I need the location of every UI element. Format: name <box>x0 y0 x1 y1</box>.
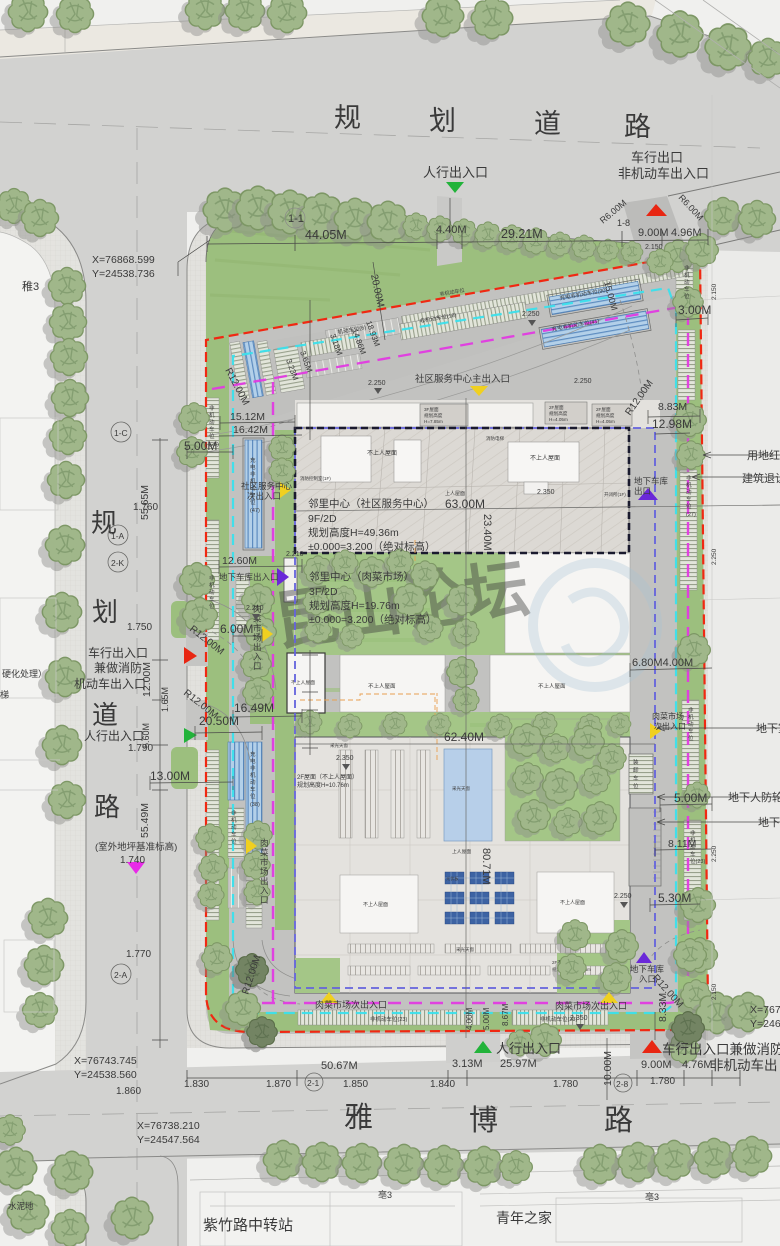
svg-text:13.00M: 13.00M <box>150 769 190 783</box>
svg-text:采光天窗: 采光天窗 <box>456 946 474 953</box>
svg-text:1.770: 1.770 <box>126 949 151 960</box>
svg-text:兼做消防: 兼做消防 <box>94 660 142 675</box>
svg-text:X=76738.210: X=76738.210 <box>137 1120 200 1132</box>
svg-text:2.150: 2.150 <box>711 283 718 300</box>
svg-text:4.00M: 4.00M <box>465 1007 474 1030</box>
svg-text:不上人屋面: 不上人屋面 <box>363 901 388 908</box>
svg-text:16.49M: 16.49M <box>234 701 274 715</box>
svg-text:12.60M: 12.60M <box>222 555 257 567</box>
svg-text:路: 路 <box>94 792 120 822</box>
svg-text:地下室: 地下室 <box>756 721 780 735</box>
svg-text:非机动车出: 非机动车出 <box>710 1057 778 1073</box>
svg-text:机动车出入口: 机动车出入口 <box>74 676 146 691</box>
svg-text:光伏板: 光伏板 <box>446 875 459 882</box>
svg-text:博: 博 <box>469 1104 498 1137</box>
svg-text:50.67M: 50.67M <box>321 1060 358 1072</box>
svg-text:5.60M: 5.60M <box>141 723 151 748</box>
svg-text:2-1: 2-1 <box>307 1078 320 1088</box>
svg-text:1.750: 1.750 <box>127 622 152 633</box>
svg-text:44.05M: 44.05M <box>305 228 347 242</box>
svg-text:消防电梯: 消防电梯 <box>486 435 504 442</box>
svg-text:次出入口: 次出入口 <box>654 721 686 731</box>
svg-text:Y=24538.736: Y=24538.736 <box>92 268 155 280</box>
svg-text:6.00M: 6.00M <box>220 622 253 636</box>
svg-text:±0.000=3.200（绝对标高）: ±0.000=3.200（绝对标高） <box>308 540 435 553</box>
svg-text:规划高度H=49.36m: 规划高度H=49.36m <box>308 526 399 539</box>
svg-text:X=76868.599: X=76868.599 <box>92 254 155 266</box>
svg-text:雅: 雅 <box>344 1101 373 1134</box>
svg-text:55.49M: 55.49M <box>139 803 151 838</box>
svg-text:规: 规 <box>334 103 361 133</box>
svg-text:62.40M: 62.40M <box>444 730 484 744</box>
svg-text:3.13M: 3.13M <box>452 1058 483 1070</box>
svg-text:亳3: 亳3 <box>645 1191 659 1202</box>
svg-text:不上人屋面: 不上人屋面 <box>367 449 397 457</box>
svg-text:路: 路 <box>624 112 651 142</box>
svg-text:地下车库出入口: 地下车库出入口 <box>219 572 279 582</box>
svg-text:2-8: 2-8 <box>616 1079 629 1089</box>
svg-text:±0.000=3.200（绝对标高）: ±0.000=3.200（绝对标高） <box>309 613 436 626</box>
svg-text:地下车库: 地下车库 <box>634 476 669 486</box>
svg-text:H=7.85m: H=7.85m <box>424 419 443 424</box>
svg-text:非机动车位(23): 非机动车位(23) <box>370 1015 407 1023</box>
svg-text:Y=246: Y=246 <box>750 1018 780 1030</box>
svg-text:8.33M: 8.33M <box>657 993 669 1022</box>
svg-text:地下车库: 地下车库 <box>630 964 665 974</box>
svg-text:水泥地: 水泥地 <box>8 1201 34 1211</box>
svg-text:非机动车位(23): 非机动车位(23) <box>540 1015 577 1023</box>
svg-text:不上人屋面: 不上人屋面 <box>368 682 396 690</box>
svg-text:1.65M: 1.65M <box>160 687 170 712</box>
svg-text:稚3: 稚3 <box>22 280 39 293</box>
svg-text:5.00M: 5.00M <box>674 791 707 805</box>
svg-text:2.350: 2.350 <box>537 489 555 496</box>
svg-text:(室外地坪基准标高): (室外地坪基准标高) <box>95 841 177 853</box>
svg-text:不上人屋面: 不上人屋面 <box>538 682 566 690</box>
svg-text:路: 路 <box>604 1104 633 1137</box>
svg-text:青年之家: 青年之家 <box>496 1210 552 1226</box>
svg-text:非机动车位: 非机动车位 <box>688 706 694 742</box>
svg-text:23.40M: 23.40M <box>481 514 493 551</box>
svg-text:Y=24538.560: Y=24538.560 <box>74 1069 137 1081</box>
svg-text:2-K: 2-K <box>111 558 125 568</box>
svg-text:2.150: 2.150 <box>711 983 718 1000</box>
svg-text:车行出入口: 车行出入口 <box>88 645 148 660</box>
svg-text:2.250: 2.250 <box>711 845 718 862</box>
svg-text:2.150: 2.150 <box>645 244 663 251</box>
svg-text:20.50M: 20.50M <box>199 714 239 728</box>
svg-text:非机动车出入口: 非机动车出入口 <box>618 166 709 181</box>
svg-text:建筑退让: 建筑退让 <box>742 471 780 485</box>
svg-text:9.00M: 9.00M <box>641 1059 672 1071</box>
svg-text:1-C: 1-C <box>114 428 128 438</box>
svg-text:1.780: 1.780 <box>650 1076 675 1087</box>
svg-text:肉菜市场次出入口: 肉菜市场次出入口 <box>555 1000 627 1011</box>
svg-text:地下人防轮: 地下人防轮 <box>728 790 780 804</box>
svg-text:地下: 地下 <box>758 816 780 829</box>
svg-text:8.83M: 8.83M <box>658 401 687 413</box>
svg-text:63.00M: 63.00M <box>445 497 485 511</box>
svg-text:X=767: X=767 <box>750 1004 780 1016</box>
svg-text:6.80M4.00M: 6.80M4.00M <box>632 657 693 669</box>
svg-text:开闭所(1F): 开闭所(1F) <box>604 491 626 498</box>
svg-text:人行出入口: 人行出入口 <box>84 729 144 743</box>
svg-text:1.860: 1.860 <box>116 1086 141 1097</box>
svg-text:紫竹路中转站: 紫竹路中转站 <box>203 1217 293 1234</box>
svg-text:道: 道 <box>534 109 561 139</box>
svg-text:规划高度H=19.76m: 规划高度H=19.76m <box>309 599 400 612</box>
svg-text:H=4.05m: H=4.05m <box>549 417 568 422</box>
svg-text:邻里中心（社区服务中心）: 邻里中心（社区服务中心） <box>308 497 434 510</box>
svg-text:采光天窗: 采光天窗 <box>330 742 348 749</box>
svg-text:肉菜市场次出入口: 肉菜市场次出入口 <box>315 999 387 1010</box>
svg-text:邻里中心（肉菜市场）: 邻里中心（肉菜市场） <box>309 570 414 583</box>
svg-text:1-8: 1-8 <box>617 218 630 228</box>
svg-text:Y=24547.564: Y=24547.564 <box>137 1134 200 1146</box>
svg-text:4.40M: 4.40M <box>436 224 467 236</box>
svg-text:不上人屋面: 不上人屋面 <box>530 454 560 462</box>
svg-text:划: 划 <box>429 106 456 136</box>
svg-text:社区服务中心主出入口: 社区服务中心主出入口 <box>415 373 510 385</box>
svg-text:非机动车位: 非机动车位 <box>684 264 690 300</box>
svg-text:规划高度: 规划高度 <box>549 410 568 417</box>
svg-text:3.00M: 3.00M <box>678 303 711 317</box>
svg-text:16.42M: 16.42M <box>233 424 268 436</box>
svg-text:8.67M: 8.67M <box>501 1003 510 1026</box>
svg-text:H=4.05m: H=4.05m <box>596 419 615 424</box>
svg-text:2.250: 2.250 <box>522 311 540 318</box>
svg-text:1-A: 1-A <box>111 531 125 541</box>
svg-text:1.840: 1.840 <box>430 1079 455 1090</box>
svg-text:社区服务中心: 社区服务中心 <box>241 481 293 491</box>
svg-text:道: 道 <box>92 700 118 730</box>
svg-text:X=76743.745: X=76743.745 <box>74 1055 137 1067</box>
svg-text:80.71M: 80.71M <box>480 848 492 885</box>
svg-text:15.12M: 15.12M <box>230 411 265 423</box>
svg-text:消防控制室(1F): 消防控制室(1F) <box>300 475 331 482</box>
svg-text:规划高度: 规划高度 <box>424 412 443 419</box>
svg-text:2.250: 2.250 <box>711 548 718 565</box>
svg-text:规划高度: 规划高度 <box>596 412 615 419</box>
svg-text:5.30M: 5.30M <box>658 891 691 905</box>
svg-text:2.210: 2.210 <box>246 605 264 612</box>
svg-text:人行出入口: 人行出入口 <box>423 165 488 180</box>
svg-text:2.350: 2.350 <box>336 755 354 762</box>
svg-text:10.00M: 10.00M <box>602 1051 614 1086</box>
svg-text:2F屋面（不上人屋面）: 2F屋面（不上人屋面） <box>297 773 358 781</box>
svg-text:车行出口: 车行出口 <box>631 150 683 165</box>
svg-text:12.98M: 12.98M <box>652 417 692 431</box>
svg-text:9F/2D: 9F/2D <box>308 513 337 525</box>
svg-text:2.210: 2.210 <box>286 551 304 558</box>
svg-text:非机动车位: 非机动车位 <box>209 574 215 610</box>
svg-text:55.65M: 55.65M <box>139 485 151 520</box>
svg-text:25.97M: 25.97M <box>500 1058 537 1070</box>
svg-text:12.00M: 12.00M <box>141 662 153 697</box>
svg-text:1.740: 1.740 <box>120 855 145 866</box>
svg-text:29.21M: 29.21M <box>501 227 543 241</box>
svg-text:2.250: 2.250 <box>368 380 386 387</box>
svg-text:3F/2D: 3F/2D <box>309 586 338 598</box>
svg-text:上人屋面: 上人屋面 <box>445 490 465 497</box>
svg-text:5.00M: 5.00M <box>482 1007 491 1030</box>
svg-text:2.250: 2.250 <box>614 893 632 900</box>
svg-text:用地红: 用地红 <box>747 449 780 462</box>
svg-text:1.870: 1.870 <box>266 1079 291 1090</box>
svg-text:梯: 梯 <box>0 689 9 700</box>
svg-text:9.00M: 9.00M <box>638 227 669 239</box>
svg-text:采光天窗: 采光天窗 <box>452 785 470 792</box>
svg-text:不上人屋面: 不上人屋面 <box>560 899 585 906</box>
svg-text:4.76M: 4.76M <box>682 1059 713 1071</box>
svg-text:车行出入口兼做消防: 车行出入口兼做消防 <box>662 1041 780 1057</box>
svg-text:规划高度H=10.76m: 规划高度H=10.76m <box>297 781 349 789</box>
svg-text:1-1: 1-1 <box>288 213 304 225</box>
svg-text:出口: 出口 <box>634 486 651 496</box>
svg-text:划: 划 <box>92 597 118 627</box>
svg-text:肉菜市场: 肉菜市场 <box>652 711 684 721</box>
svg-text:1.850: 1.850 <box>343 1079 368 1090</box>
svg-text:1.830: 1.830 <box>184 1079 209 1090</box>
svg-text:肉菜市场出入口: 肉菜市场出入口 <box>260 838 269 905</box>
svg-text:非机动车位: 非机动车位 <box>231 809 237 845</box>
svg-text:人行出入口: 人行出入口 <box>496 1041 561 1056</box>
svg-text:4.96M: 4.96M <box>671 227 702 239</box>
svg-text:硬化处理）: 硬化处理） <box>2 668 47 679</box>
svg-text:亳3: 亳3 <box>378 1189 392 1200</box>
svg-text:2.250: 2.250 <box>574 378 592 385</box>
svg-text:上人屋面: 上人屋面 <box>452 848 471 855</box>
svg-text:1.780: 1.780 <box>553 1079 578 1090</box>
svg-text:2-A: 2-A <box>114 970 128 980</box>
